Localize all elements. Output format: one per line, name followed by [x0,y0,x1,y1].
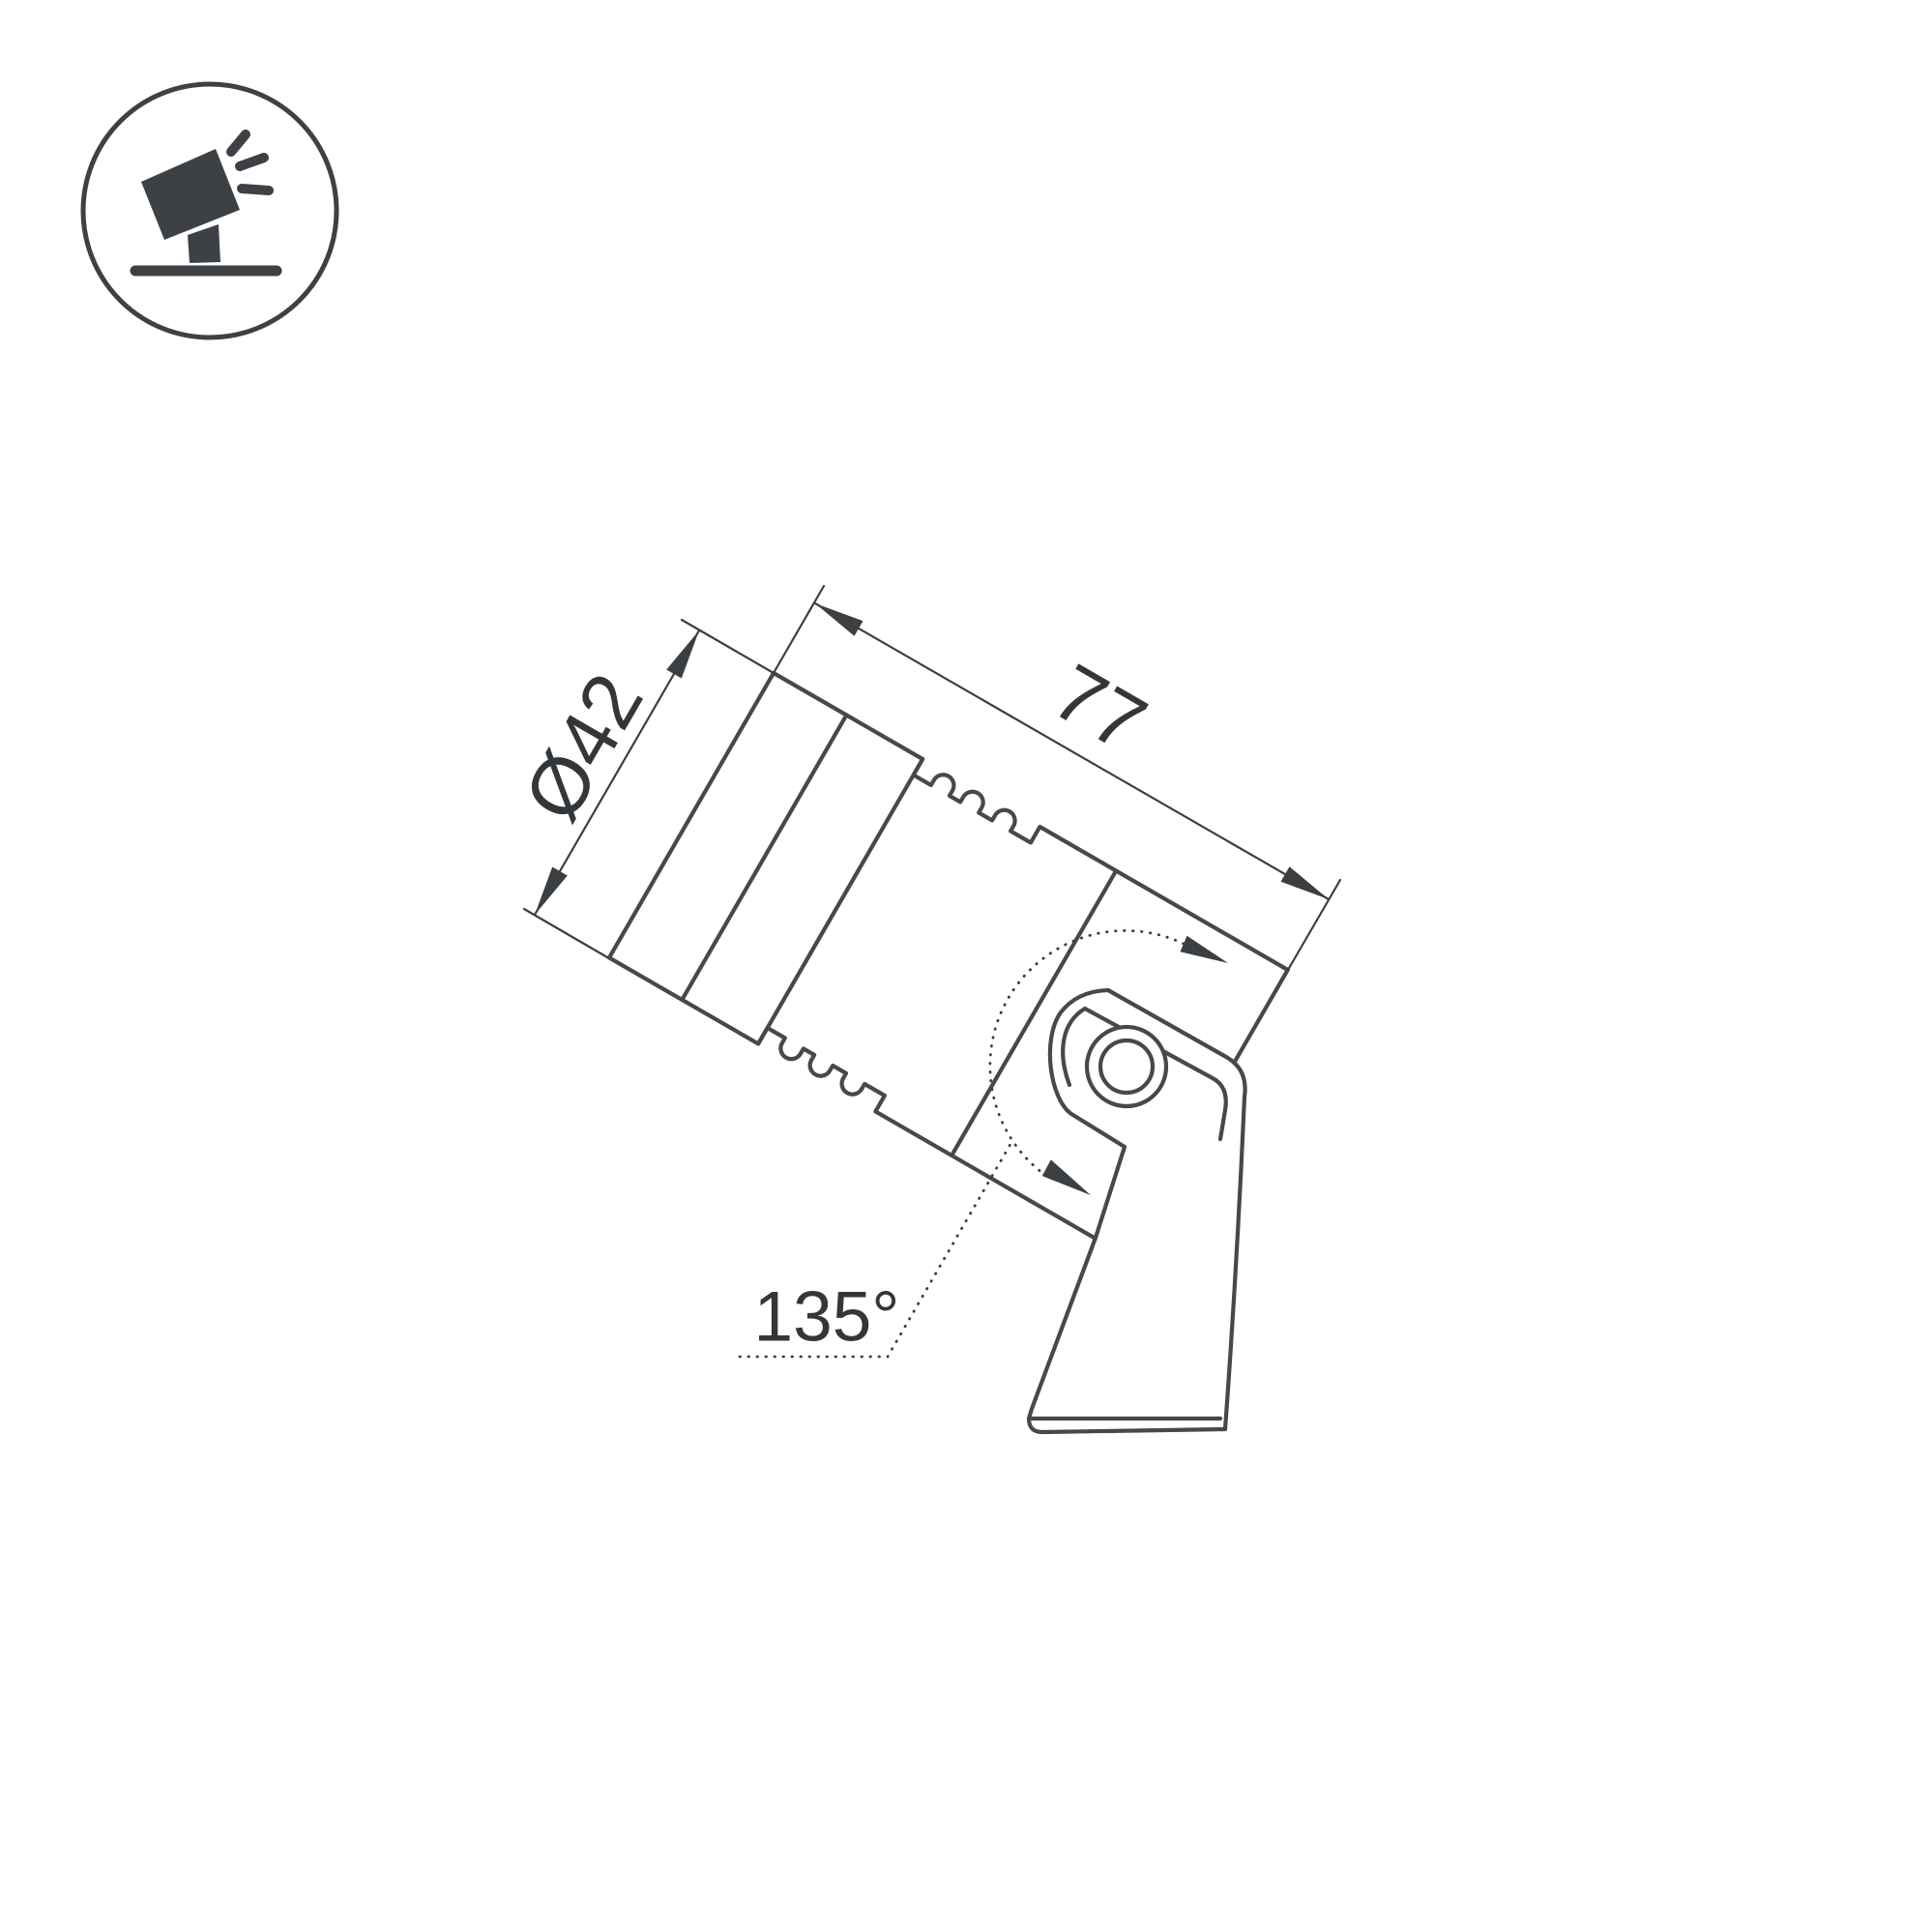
arc-arrowhead [1042,1159,1091,1195]
body-section-line [682,716,846,1000]
arc-arrowhead [1181,936,1229,963]
spotlight-head-icon [141,149,240,240]
spotlight-stem-icon [188,224,220,263]
extension-line [524,909,607,957]
mounting-bracket [1029,990,1245,1432]
dimension-arrowhead [666,630,699,679]
diameter-dimension-label: Ø42 [507,659,660,835]
aiming-spotlight-badge [83,84,337,337]
extension-line [682,620,774,673]
light-ray-icon [231,134,246,152]
dimension-arrowhead [535,867,568,916]
dimension-arrowhead [1281,866,1330,899]
body-section-line [758,759,922,1043]
light-ray-icon [242,189,269,190]
light-ray-icon [240,158,264,166]
technical-drawing-page: Ø42 77 135° [0,0,1932,1932]
drawing-canvas: Ø42 77 135° [0,0,1932,1932]
tilt-angle-label: 135° [754,1277,900,1356]
pivot-screw [1100,1040,1153,1093]
length-dimension-label: 77 [1039,647,1160,770]
length-dimension-line [815,603,1329,899]
dimension-arrowhead [815,603,864,636]
extension-line [774,586,824,673]
